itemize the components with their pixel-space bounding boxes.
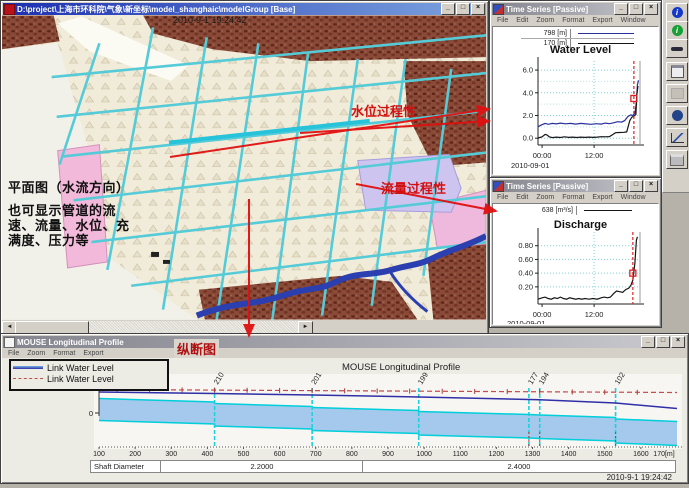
ts2-content: 638 [m³/s] Discharge 0.200.400.600.8000:… bbox=[492, 203, 659, 325]
map-window: D:\project\上海市环科院\气象\新坐标\model_shanghaic… bbox=[0, 0, 489, 334]
annotation-plan-view: 平面图（水流方向） bbox=[8, 177, 130, 196]
ts1-content: 798 [m] 170 [m] Water Level 0.02.04.06.0… bbox=[492, 26, 659, 175]
x-tick-label: 12:00 bbox=[585, 151, 604, 160]
map-structure bbox=[163, 260, 170, 264]
screen: D:\project\上海市环科院\气象\新坐标\model_shanghaic… bbox=[0, 0, 689, 488]
series-line bbox=[538, 80, 639, 127]
y-tick-label: 0.0 bbox=[523, 134, 533, 143]
profile-title-bar[interactable]: MOUSE Longitudinal Profile _ □ × bbox=[3, 336, 686, 348]
y-tick-label: 6.0 bbox=[523, 66, 533, 75]
green-status-icon: i bbox=[672, 25, 683, 36]
minimize-icon[interactable]: _ bbox=[614, 3, 628, 15]
menu-item-edit[interactable]: Edit bbox=[516, 194, 528, 201]
edit-chart-button[interactable] bbox=[666, 128, 688, 147]
timeseries-icon bbox=[493, 4, 504, 15]
side-toolbar: i i bbox=[662, 0, 689, 193]
date-label: 2010-09-01 bbox=[511, 161, 549, 170]
app-icon bbox=[4, 4, 15, 15]
shaft-diameter-value: 2.2000 bbox=[160, 460, 364, 473]
annotation-water-level: 水位过程性 bbox=[351, 101, 416, 120]
minimize-icon[interactable]: _ bbox=[441, 3, 455, 15]
menu-item-file[interactable]: File bbox=[8, 350, 19, 357]
profile-legend: Link Water Level Link Water Level bbox=[9, 359, 169, 391]
menu-item-export[interactable]: Export bbox=[592, 194, 612, 201]
x-tick-label: 1500 bbox=[597, 451, 613, 458]
annotation-note-line1: 也可显示管道的流 bbox=[8, 203, 148, 218]
menu-item-zoom[interactable]: Zoom bbox=[536, 17, 554, 24]
maximize-icon[interactable]: □ bbox=[456, 3, 470, 15]
y-tick-label: 0.80 bbox=[518, 241, 533, 250]
ts1-menu-bar: FileEditZoomFormatExportWindow bbox=[492, 15, 659, 26]
y-tick-label: 4.0 bbox=[523, 88, 533, 97]
y-tick-label: 0.60 bbox=[518, 255, 533, 264]
x-tick-label: 1000 bbox=[416, 451, 432, 458]
info-icon: i bbox=[672, 7, 683, 18]
x-tick-label: 00:00 bbox=[533, 151, 552, 160]
annotation-discharge: 流量过程性 bbox=[381, 178, 446, 197]
menu-item-file[interactable]: File bbox=[497, 194, 508, 201]
map-window-title: D:\project\上海市环科院\气象\新坐标\model_shanghaic… bbox=[17, 4, 439, 15]
profile-doc-icon bbox=[4, 337, 15, 348]
timeseries-icon bbox=[493, 181, 504, 192]
menu-item-export[interactable]: Export bbox=[592, 17, 612, 24]
x-tick-label: 700 bbox=[310, 451, 322, 458]
menu-item-format[interactable]: Format bbox=[562, 17, 584, 24]
ts2-menu-bar: FileEditZoomFormatExportWindow bbox=[492, 192, 659, 203]
y-zero-label: 0 bbox=[89, 409, 93, 418]
legend-label: Link Water Level bbox=[47, 363, 114, 373]
shaft-diameter-value: 2.4000 bbox=[362, 460, 676, 473]
printer-icon bbox=[670, 154, 684, 166]
date-label: 2010-09-01 bbox=[507, 319, 545, 325]
x-tick-label: 1100 bbox=[453, 451, 468, 458]
ts2-title-bar[interactable]: Time Series [Passive] _ □ × bbox=[492, 180, 659, 192]
water-level-window: Time Series [Passive] _ □ × FileEditZoom… bbox=[489, 0, 662, 178]
menu-item-window[interactable]: Window bbox=[621, 194, 646, 201]
menu-item-export[interactable]: Export bbox=[83, 350, 103, 357]
disabled-icon bbox=[671, 88, 684, 99]
y-tick-label: 2.0 bbox=[523, 111, 533, 120]
minimize-icon[interactable]: _ bbox=[641, 336, 655, 348]
scrollbar-track[interactable] bbox=[15, 321, 298, 333]
close-icon[interactable]: × bbox=[671, 336, 685, 348]
x-tick-label: 900 bbox=[382, 451, 394, 458]
x-tick-label: 1300 bbox=[525, 451, 541, 458]
ts1-title-bar[interactable]: Time Series [Passive] _ □ × bbox=[492, 3, 659, 15]
close-icon[interactable]: × bbox=[471, 3, 485, 15]
x-tick-label: 600 bbox=[274, 451, 286, 458]
x-tick-label: 1200 bbox=[489, 451, 505, 458]
profile-status-datetime: 2010-9-1 19:24:42 bbox=[607, 473, 672, 482]
x-tick-label: 1400 bbox=[561, 451, 577, 458]
menu-item-zoom[interactable]: Zoom bbox=[27, 350, 45, 357]
menu-item-window[interactable]: Window bbox=[621, 17, 646, 24]
map-canvas[interactable]: 2010-9-1 19:24:42 平面图（水流方向） 也可显示管道的流 速、流… bbox=[2, 15, 486, 320]
maximize-icon[interactable]: □ bbox=[629, 180, 643, 192]
x-tick-label: 400 bbox=[202, 451, 214, 458]
map-structure bbox=[151, 252, 159, 257]
annotation-profile: 纵断图 bbox=[174, 339, 219, 358]
discharge-window: Time Series [Passive] _ □ × FileEditZoom… bbox=[489, 177, 662, 328]
annotation-note-line3: 满度、压力等 bbox=[8, 233, 148, 248]
profile-window-title: MOUSE Longitudinal Profile bbox=[17, 338, 639, 347]
y-tick-label: 0.40 bbox=[518, 269, 533, 278]
x-tick-label: 500 bbox=[238, 451, 250, 458]
shaft-diameter-label: Shaft Diameter bbox=[90, 460, 165, 473]
new-window-button[interactable] bbox=[666, 62, 688, 81]
map-horizontal-scrollbar[interactable]: ◄ ► bbox=[2, 321, 487, 333]
globe-button[interactable] bbox=[666, 106, 688, 125]
menu-item-file[interactable]: File bbox=[497, 17, 508, 24]
map-graphic bbox=[2, 15, 486, 320]
close-icon[interactable]: × bbox=[644, 3, 658, 15]
maximize-icon[interactable]: □ bbox=[656, 336, 670, 348]
print-button[interactable] bbox=[666, 150, 688, 169]
x-tick-label: 1600 bbox=[633, 451, 649, 458]
x-tick-label: 200 bbox=[129, 451, 141, 458]
chart-pencil-icon bbox=[671, 133, 684, 143]
map-datetime: 2010-9-1 19:24:42 bbox=[173, 15, 247, 25]
profile-content: Link Water Level Link Water Level MOUSE … bbox=[2, 358, 687, 482]
discharge-chart[interactable]: 0.200.400.600.8000:0012:002010-09-01 bbox=[493, 204, 658, 325]
y-tick-label: 0.20 bbox=[518, 282, 533, 291]
legend-label: Link Water Level bbox=[47, 374, 114, 384]
info-button[interactable]: i bbox=[666, 3, 688, 22]
ts2-window-title: Time Series [Passive] bbox=[506, 182, 612, 191]
menu-item-format[interactable]: Format bbox=[53, 350, 75, 357]
x-tick-label: 300 bbox=[165, 451, 177, 458]
map-title-bar[interactable]: D:\project\上海市环科院\气象\新坐标\model_shanghaic… bbox=[3, 3, 486, 15]
x-end-label: 170[m] bbox=[653, 451, 674, 458]
x-tick-label: 12:00 bbox=[585, 310, 604, 319]
stop-button[interactable] bbox=[666, 39, 688, 58]
profile-window: MOUSE Longitudinal Profile _ □ × FileZoo… bbox=[0, 333, 689, 484]
profile-chart-title: MOUSE Longitudinal Profile bbox=[342, 362, 460, 373]
disabled-tool-button[interactable] bbox=[666, 84, 688, 103]
menu-item-edit[interactable]: Edit bbox=[516, 17, 528, 24]
legend-line-swatch bbox=[13, 366, 43, 369]
globe-icon bbox=[672, 110, 683, 121]
bar-icon bbox=[671, 47, 683, 51]
annotation-note-line2: 速、流量、水位、充 bbox=[8, 218, 148, 233]
maximize-icon[interactable]: □ bbox=[629, 3, 643, 15]
x-tick-label: 800 bbox=[346, 451, 358, 458]
window-icon bbox=[671, 65, 684, 78]
legend-line-swatch bbox=[13, 378, 43, 379]
run-status-button[interactable]: i bbox=[666, 21, 688, 40]
annotation-note: 也可显示管道的流 速、流量、水位、充 满度、压力等 bbox=[8, 203, 148, 248]
close-icon[interactable]: × bbox=[644, 180, 658, 192]
x-tick-label: 100 bbox=[93, 451, 105, 458]
menu-item-format[interactable]: Format bbox=[562, 194, 584, 201]
water-level-chart[interactable]: 0.02.04.06.000:0012:002010-09-01 bbox=[493, 27, 658, 175]
x-tick-label: 00:00 bbox=[533, 310, 552, 319]
ts1-window-title: Time Series [Passive] bbox=[506, 5, 612, 14]
menu-item-zoom[interactable]: Zoom bbox=[536, 194, 554, 201]
series-line bbox=[538, 86, 638, 138]
minimize-icon[interactable]: _ bbox=[614, 180, 628, 192]
